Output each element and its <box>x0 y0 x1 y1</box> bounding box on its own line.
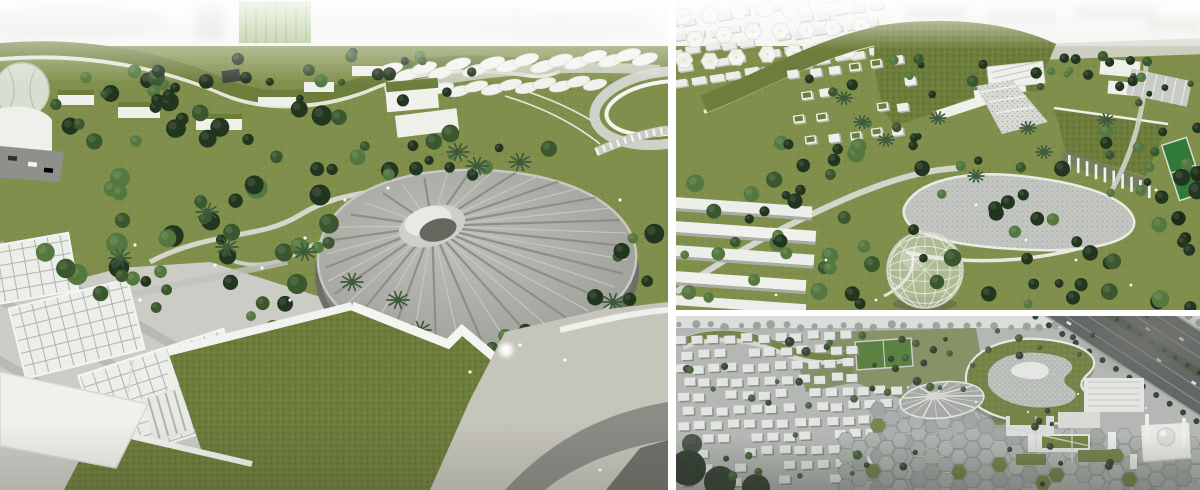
tree-highlight <box>647 226 656 235</box>
tree-highlight <box>1102 138 1108 144</box>
tree-highlight <box>1032 214 1038 220</box>
tree-highlight <box>1173 213 1179 219</box>
tree-highlight <box>932 277 939 284</box>
tree-highlight <box>1084 71 1089 76</box>
canopy-hub <box>793 51 796 54</box>
tree-highlight <box>761 207 766 212</box>
tree-highlight <box>1146 164 1150 168</box>
tree-highlight <box>731 238 736 243</box>
tree-highlight <box>1190 184 1198 192</box>
tree-highlight <box>1068 293 1074 299</box>
palm-crown <box>224 244 231 251</box>
tree-highlight <box>829 155 835 161</box>
tree-highlight <box>117 271 123 277</box>
tree-highlight <box>128 273 134 279</box>
tree-highlight <box>444 127 452 135</box>
tree-highlight <box>946 251 954 259</box>
tree-highlight <box>866 258 873 265</box>
palm-crown <box>884 138 889 143</box>
tree-highlight <box>1162 85 1165 88</box>
tree-highlight <box>1152 148 1156 152</box>
tree-highlight <box>1108 190 1112 194</box>
palm-crown <box>395 297 402 304</box>
tree-highlight <box>847 288 854 295</box>
tree-highlight <box>684 287 691 294</box>
tree-highlight <box>112 170 121 179</box>
tree-highlight <box>1138 74 1142 78</box>
tree-highlight <box>1056 280 1060 284</box>
palm-crown <box>974 174 979 179</box>
tree-highlight <box>776 236 782 242</box>
colonnade-post <box>1130 177 1133 192</box>
tree-highlight <box>95 288 102 295</box>
tree-highlight <box>1084 247 1091 254</box>
building-block <box>787 69 799 78</box>
tree-highlight <box>910 226 915 231</box>
tree-highlight <box>783 192 787 196</box>
panel-left-photo <box>0 0 668 490</box>
tree-highlight <box>1056 163 1063 170</box>
tree-highlight <box>1145 179 1149 183</box>
palm-crown <box>860 120 865 125</box>
tree-highlight <box>1193 124 1198 129</box>
panel-top-right-photo <box>676 0 1200 310</box>
tree-highlight <box>1048 215 1054 221</box>
tree-highlight <box>1023 254 1028 259</box>
tree-highlight <box>915 55 920 60</box>
palm-crown <box>204 209 211 216</box>
tree-highlight <box>1099 52 1104 57</box>
tree-highlight <box>1127 57 1131 61</box>
tree-highlight <box>907 74 910 77</box>
canopy-hub <box>735 56 738 59</box>
tree-highlight <box>990 203 996 209</box>
tree-highlight <box>1186 303 1192 309</box>
ground-light <box>975 204 978 207</box>
ground-light <box>288 298 291 301</box>
tree-highlight <box>1185 246 1190 251</box>
tree-highlight <box>1019 191 1024 196</box>
bottom-vignette <box>0 420 668 490</box>
tree-highlight <box>1025 301 1029 305</box>
tree-highlight <box>277 246 285 254</box>
ground-light <box>386 186 389 189</box>
tree-highlight <box>109 236 119 246</box>
palm-crown <box>455 149 462 156</box>
tree-highlight <box>776 137 783 144</box>
tree-highlight <box>968 77 973 82</box>
ground-light <box>775 294 778 297</box>
tree-highlight <box>114 187 121 194</box>
tree-highlight <box>352 151 359 158</box>
tree-highlight <box>156 267 162 273</box>
tree-highlight <box>361 142 366 147</box>
tree-highlight <box>890 57 894 61</box>
tree-highlight <box>859 242 865 248</box>
colonnade-post <box>1095 164 1098 179</box>
canopy-hub <box>766 53 769 56</box>
model-car <box>8 156 17 161</box>
tree-highlight <box>1157 192 1163 198</box>
tree-highlight <box>1144 58 1148 62</box>
ground-light <box>303 236 306 239</box>
tree-highlight <box>64 120 72 128</box>
tree-highlight <box>244 135 249 140</box>
palm-crown <box>610 299 617 306</box>
tree-highlight <box>272 152 278 158</box>
tree-highlight <box>328 165 333 170</box>
tree-highlight <box>782 249 787 254</box>
tree-highlight <box>1188 81 1191 84</box>
tree-highlight <box>824 250 831 257</box>
tree-highlight <box>163 286 168 291</box>
colonnade-post <box>1077 158 1080 173</box>
tree-highlight <box>1116 83 1120 87</box>
tree-highlight <box>217 236 222 241</box>
palm-crown <box>1042 150 1047 155</box>
tree-highlight <box>1067 68 1070 71</box>
tree-highlight <box>409 142 414 147</box>
tree-highlight <box>177 114 183 120</box>
tree-highlight <box>1182 159 1187 164</box>
tree-highlight <box>1038 84 1041 87</box>
tree-highlight <box>290 276 299 285</box>
tree-highlight <box>798 160 804 166</box>
tree-highlight <box>1160 129 1164 133</box>
overexposure-fade <box>0 0 668 84</box>
tree-highlight <box>893 124 897 128</box>
canopy-hub <box>683 59 686 62</box>
panel-bottom-right-render <box>676 316 1200 490</box>
tree-highlight <box>1076 280 1082 286</box>
tree-highlight <box>1003 197 1009 203</box>
tree-highlight <box>446 164 451 169</box>
tree-highlight <box>247 178 256 187</box>
tree-highlight <box>746 188 753 195</box>
tree-highlight <box>797 186 802 191</box>
tree-highlight <box>1064 72 1067 75</box>
palm-crown <box>349 279 356 286</box>
building-block <box>829 65 841 74</box>
tree-highlight <box>856 300 861 305</box>
tree-highlight <box>689 177 697 185</box>
tree-highlight <box>1103 285 1111 293</box>
panel-divider-vertical <box>668 0 676 490</box>
tree-highlight <box>983 288 990 295</box>
tree-highlight <box>1178 238 1183 243</box>
tree-highlight <box>171 84 176 89</box>
palm-crown <box>1104 118 1109 123</box>
colonnade-post <box>1086 161 1089 176</box>
ground-light <box>343 198 346 201</box>
tree-highlight <box>52 100 57 105</box>
masterplan-rendering <box>676 316 1200 490</box>
colonnade-post <box>1104 167 1107 182</box>
tree-highlight <box>152 304 157 309</box>
overexposure-fade <box>676 0 1200 50</box>
tree-highlight <box>333 111 340 118</box>
tree-highlight <box>1107 255 1114 262</box>
ground-light <box>1025 239 1028 242</box>
tree-highlight <box>279 298 286 305</box>
bottom-fade <box>676 436 1200 490</box>
tree-highlight <box>101 91 105 95</box>
tree-highlight <box>196 197 202 203</box>
photo-collage <box>0 0 1200 490</box>
tree-highlight <box>230 195 236 201</box>
tree-highlight <box>314 108 323 117</box>
tree-highlight <box>59 261 68 270</box>
tree-highlight <box>225 226 233 234</box>
light-bloom <box>499 343 513 357</box>
tree-highlight <box>428 135 435 142</box>
ground-light <box>1155 189 1158 192</box>
tree-highlight <box>293 103 301 111</box>
tree-highlight <box>75 120 80 125</box>
ground-light <box>563 358 566 361</box>
ground-light <box>260 266 263 269</box>
palm-crown <box>117 255 124 262</box>
tree-highlight <box>930 92 933 95</box>
tree-highlight <box>106 183 113 190</box>
building-block <box>897 102 909 111</box>
tree-highlight <box>1030 280 1035 285</box>
tree-highlight <box>314 243 319 248</box>
tree-highlight <box>916 162 923 169</box>
tree-highlight <box>826 170 831 175</box>
tree-highlight <box>750 275 755 280</box>
tree-highlight <box>938 191 942 195</box>
ground-light <box>138 298 141 301</box>
tree-highlight <box>443 89 447 93</box>
tree-highlight <box>1017 164 1022 169</box>
ground-light <box>875 299 878 302</box>
ground-light <box>1075 259 1078 262</box>
ground-light <box>825 259 828 262</box>
tree-highlight <box>322 216 331 225</box>
terrace-roof <box>58 90 94 95</box>
model-car <box>44 168 53 173</box>
tree-highlight <box>496 145 500 149</box>
tree-highlight <box>117 215 124 222</box>
palm-crown <box>517 159 524 166</box>
tree-highlight <box>426 157 430 161</box>
tree-highlight <box>88 135 95 142</box>
tree-highlight <box>629 234 634 239</box>
tree-highlight <box>616 245 623 252</box>
tree-highlight <box>168 122 176 130</box>
tree-highlight <box>643 277 648 282</box>
tree-highlight <box>384 170 389 175</box>
tree-highlight <box>848 81 853 86</box>
tree-highlight <box>398 96 403 101</box>
tree-highlight <box>713 249 719 255</box>
tree-highlight <box>813 285 821 293</box>
tree-highlight <box>1134 143 1139 148</box>
palm-crown <box>302 249 309 256</box>
tree-highlight <box>785 141 790 146</box>
tree-highlight <box>746 215 750 219</box>
palm-crown <box>474 163 481 170</box>
tree-highlight <box>840 213 846 219</box>
tree-highlight <box>312 187 321 196</box>
tree-highlight <box>705 294 710 299</box>
ground-light <box>468 370 471 373</box>
tree-highlight <box>1101 126 1107 132</box>
tree-highlight <box>132 137 137 142</box>
tree-highlight <box>38 245 46 253</box>
tree-highlight <box>258 298 264 304</box>
tree-highlight <box>1153 219 1160 226</box>
ground-light <box>518 343 521 346</box>
tree-highlight <box>1154 292 1162 300</box>
tree-highlight <box>920 255 924 259</box>
tree-highlight <box>194 107 201 114</box>
palm-crown <box>842 96 847 101</box>
tree-highlight <box>312 164 318 170</box>
tree-highlight <box>911 134 915 138</box>
tree-highlight <box>1072 55 1076 59</box>
ground-light <box>133 243 136 246</box>
tree-highlight <box>543 143 550 150</box>
tree-highlight <box>225 277 232 284</box>
tree-highlight <box>297 96 300 99</box>
tree-highlight <box>1147 91 1150 94</box>
tree-highlight <box>247 312 252 317</box>
model-car <box>28 162 37 167</box>
ground-light <box>1130 284 1133 287</box>
ground-light <box>213 263 216 266</box>
tree-highlight <box>589 291 596 298</box>
tree-highlight <box>1032 69 1037 74</box>
building-block <box>828 133 840 142</box>
tree-highlight <box>975 157 979 161</box>
tree-highlight <box>708 206 715 213</box>
tree-highlight <box>149 86 155 92</box>
tree-highlight <box>201 132 209 140</box>
model-photo-main <box>0 0 668 490</box>
tree-highlight <box>153 96 158 101</box>
tree-highlight <box>324 238 329 243</box>
tree-highlight <box>806 76 810 80</box>
model-photo-detail <box>676 0 1200 310</box>
ground-light <box>504 346 507 349</box>
tree-highlight <box>910 142 914 146</box>
tree-highlight <box>834 145 839 150</box>
tree-highlight <box>1192 168 1199 175</box>
canopy-hub <box>709 60 712 63</box>
tree-highlight <box>1048 68 1052 72</box>
tree-highlight <box>829 89 833 93</box>
palm-crown <box>936 116 941 121</box>
tree-highlight <box>164 91 169 96</box>
tree-highlight <box>1136 100 1139 103</box>
tree-highlight <box>161 232 169 240</box>
tree-highlight <box>1061 55 1065 59</box>
tree-highlight <box>768 174 775 181</box>
tree-highlight <box>1175 171 1183 179</box>
tree-highlight <box>789 195 796 202</box>
tree-highlight <box>1129 77 1134 82</box>
ground-light <box>618 198 621 201</box>
terrace-roof <box>258 92 296 97</box>
palm-crown <box>1026 126 1031 131</box>
tree-highlight <box>625 294 631 300</box>
tree-highlight <box>853 140 860 147</box>
tree-highlight <box>142 277 147 282</box>
tree-highlight <box>1106 151 1110 155</box>
tree-highlight <box>980 61 984 65</box>
tree-highlight <box>681 252 685 256</box>
tree-highlight <box>411 164 417 170</box>
tree-highlight <box>1073 238 1078 243</box>
tree-highlight <box>1010 227 1016 233</box>
tree-highlight <box>213 120 222 129</box>
tree-highlight <box>957 162 962 167</box>
tree-highlight <box>1137 186 1142 191</box>
